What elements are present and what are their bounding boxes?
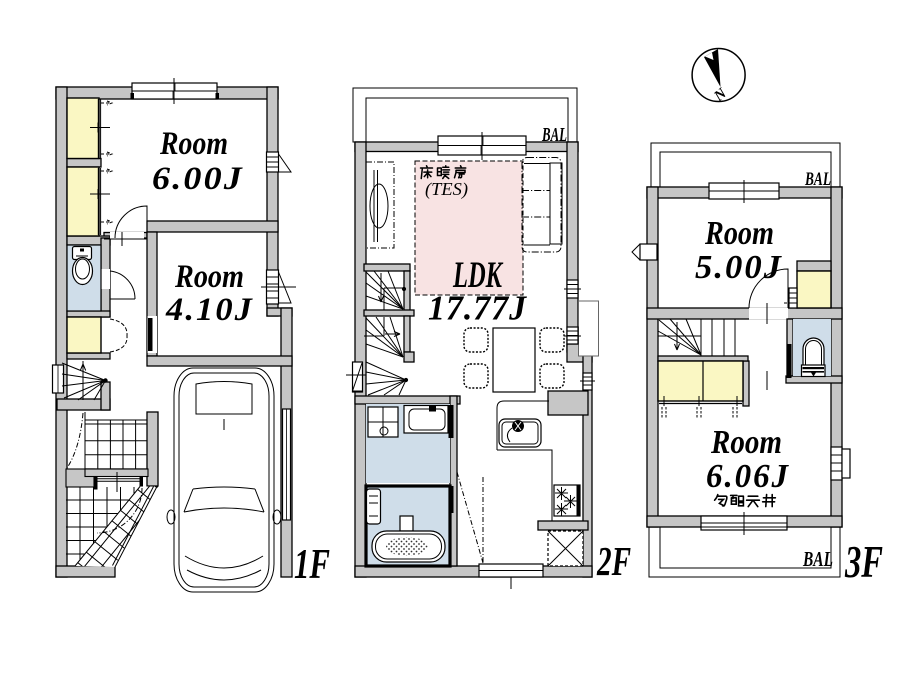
svg-text:6.06J: 6.06J	[706, 458, 790, 495]
svg-text:(TES): (TES)	[425, 179, 468, 199]
svg-text:BAL: BAL	[802, 547, 833, 571]
svg-text:4.10J: 4.10J	[165, 292, 254, 328]
svg-text:1F: 1F	[294, 542, 330, 588]
svg-text:17.77J: 17.77J	[428, 289, 527, 328]
svg-text:Room: Room	[704, 215, 774, 252]
svg-text:Room: Room	[710, 424, 782, 461]
svg-text:Room: Room	[159, 126, 228, 162]
svg-text:Room: Room	[174, 259, 244, 295]
svg-text:3F: 3F	[844, 536, 883, 587]
svg-text:5.00J: 5.00J	[695, 249, 783, 286]
svg-text:2F: 2F	[596, 538, 631, 584]
svg-text:6.00J: 6.00J	[152, 161, 244, 197]
